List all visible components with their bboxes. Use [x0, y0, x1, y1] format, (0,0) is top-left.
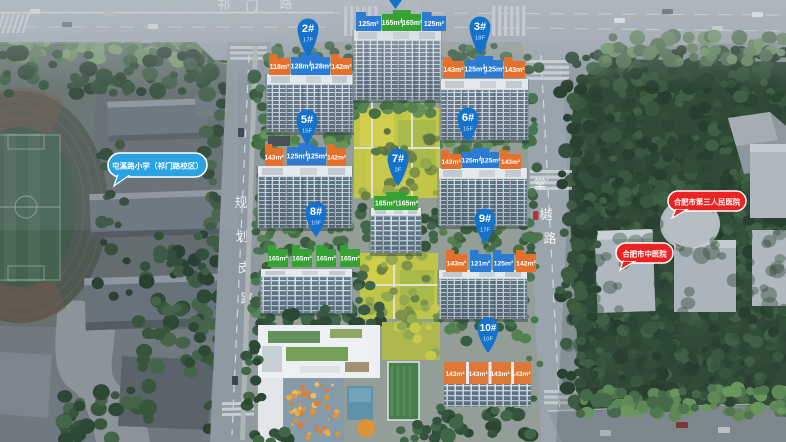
svg-text:165m²: 165m²	[375, 201, 396, 208]
svg-text:165m²: 165m²	[292, 256, 312, 263]
svg-text:2#: 2#	[302, 23, 314, 35]
svg-text:125m²: 125m²	[481, 158, 501, 165]
svg-text:143m²: 143m²	[443, 67, 464, 74]
svg-text:合肥市第三人民医院: 合肥市第三人民医院	[673, 198, 741, 207]
svg-text:6#: 6#	[462, 112, 474, 124]
svg-text:合肥市中医院: 合肥市中医院	[621, 250, 667, 259]
svg-text:7#: 7#	[392, 153, 404, 165]
svg-text:121m²: 121m²	[471, 261, 491, 268]
svg-text:142m²: 142m²	[331, 64, 352, 71]
svg-text:10#: 10#	[480, 323, 497, 334]
svg-text:128m²: 128m²	[291, 64, 312, 71]
svg-text:屯溪路小学（祁门路校区）: 屯溪路小学（祁门路校区）	[112, 161, 203, 171]
svg-text:9#: 9#	[479, 213, 491, 225]
svg-text:165m²: 165m²	[402, 20, 423, 27]
svg-text:143m²: 143m²	[511, 371, 531, 378]
svg-text:143m²: 143m²	[468, 371, 488, 378]
svg-text:17F: 17F	[303, 38, 313, 44]
svg-text:125m²: 125m²	[484, 67, 505, 74]
svg-text:143m²: 143m²	[445, 371, 465, 378]
svg-text:142m²: 142m²	[327, 155, 347, 162]
svg-text:8#: 8#	[310, 206, 322, 218]
svg-text:125m²: 125m²	[464, 67, 485, 74]
svg-text:143m²: 143m²	[490, 371, 510, 378]
svg-text:165m²: 165m²	[316, 256, 336, 263]
svg-text:17F: 17F	[480, 228, 490, 234]
svg-text:5#: 5#	[301, 114, 313, 126]
svg-text:143m²: 143m²	[504, 67, 525, 74]
svg-text:125m²: 125m²	[358, 21, 379, 28]
svg-text:2F: 2F	[395, 168, 402, 174]
svg-text:125m²: 125m²	[287, 154, 308, 161]
svg-text:10F: 10F	[483, 337, 493, 343]
svg-text:165m²: 165m²	[382, 20, 403, 27]
svg-text:125m²: 125m²	[307, 154, 328, 161]
svg-text:15F: 15F	[463, 127, 473, 133]
svg-text:125m²: 125m²	[462, 158, 482, 165]
svg-text:165m²: 165m²	[268, 256, 288, 263]
svg-text:165m²: 165m²	[340, 256, 360, 263]
svg-text:18F: 18F	[475, 36, 485, 42]
svg-text:125m²: 125m²	[424, 21, 445, 28]
svg-text:142m²: 142m²	[516, 261, 536, 268]
svg-text:125m²: 125m²	[494, 261, 514, 268]
svg-text:165m²: 165m²	[398, 201, 419, 208]
svg-text:3#: 3#	[474, 21, 486, 33]
svg-text:118m²: 118m²	[270, 64, 291, 71]
svg-text:15F: 15F	[302, 129, 312, 135]
svg-text:143m²: 143m²	[501, 159, 521, 166]
svg-text:143m²: 143m²	[264, 155, 284, 162]
svg-text:143m²: 143m²	[447, 261, 467, 268]
svg-text:143m²: 143m²	[441, 159, 461, 166]
svg-text:10F: 10F	[311, 221, 321, 227]
svg-text:128m²: 128m²	[311, 64, 332, 71]
